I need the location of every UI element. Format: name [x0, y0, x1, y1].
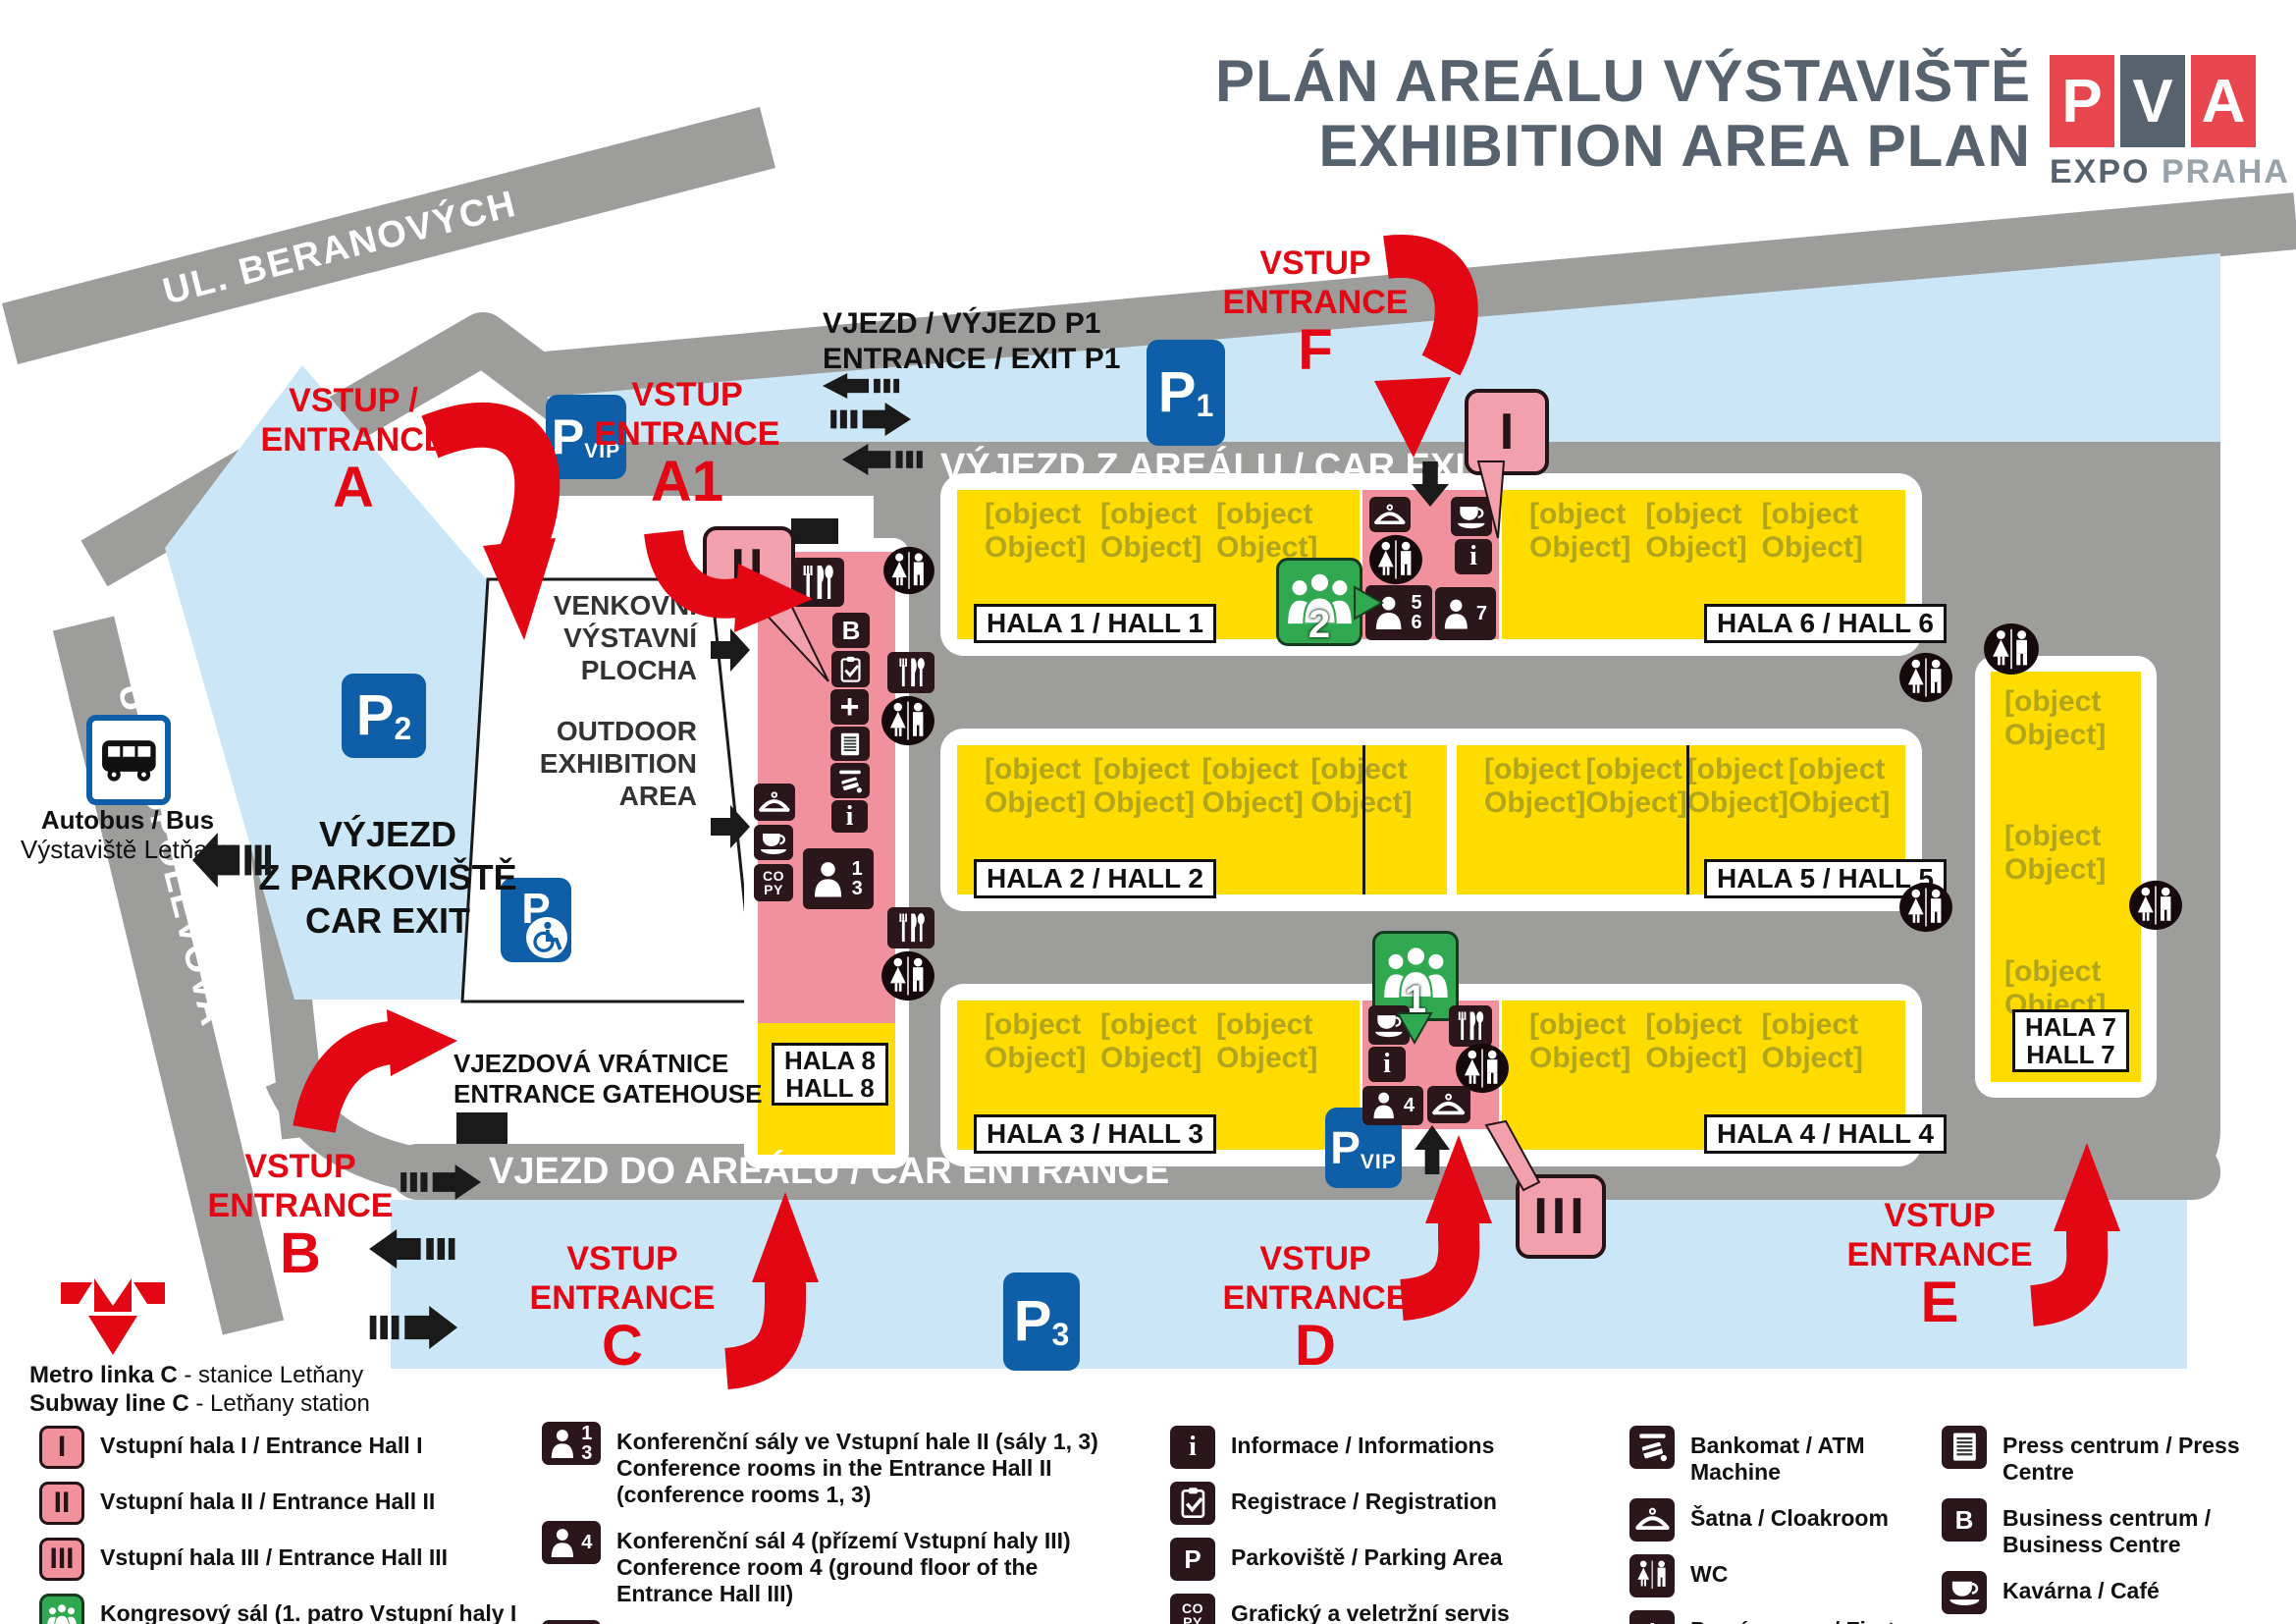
hall-6-label: HALA 6 / HALL 6 [1704, 604, 1947, 643]
entrance-c-arrow [726, 1192, 819, 1369]
entrance-f-label: VSTUP ENTRANCE F [1207, 244, 1423, 379]
legend-icon: COPY [1170, 1594, 1215, 1624]
hall-section-label: [object Object] [1202, 753, 1311, 820]
hall-section-label: [object Object] [1100, 1008, 1216, 1075]
information-icon: i [1455, 539, 1492, 574]
p1-gate-label: VJEZD / VÝJEZD P1 ENTRANCE / EXIT P1 [823, 306, 1120, 377]
hall-section-label: [object Object] [1645, 498, 1761, 565]
parking-p2-sign: P2 [342, 674, 426, 758]
legend-column-entrance-halls: I Vstupní hala I / Entrance Hall I II Vs… [39, 1426, 530, 1624]
legend-icon [1942, 1426, 1987, 1469]
hall-7-label: HALA 7 HALL 7 [2012, 1009, 2129, 1072]
p3-arrow-left [369, 1229, 461, 1269]
hall-section-label: [object Object] [985, 498, 1100, 565]
hall-section-label: [object Object] [1216, 498, 1332, 565]
road-beranovych-label: UL. BERANOVÝCH [158, 182, 520, 313]
hall-section-label: [object Object] [1216, 1008, 1332, 1075]
legend-icon [1170, 1482, 1215, 1525]
cloakroom-icon [1427, 1086, 1470, 1123]
hall-section-label: [object Object] [1789, 753, 1890, 820]
cafe-icon [754, 825, 793, 860]
logo-letter-p: P [2050, 55, 2114, 147]
road-car-entrance-label: VJEZD DO AREÁLU / CAR ENTRANCE [489, 1151, 1169, 1193]
restaurant-icon [1449, 1005, 1492, 1047]
outdoor-area-label-cz: VENKOVNÍVÝSTAVNÍPLOCHA [510, 589, 697, 686]
hall-2-label: HALA 2 / HALL 2 [974, 859, 1216, 898]
creativ-expo-copy-icon: COPY [754, 864, 793, 901]
hall-5-divider [1686, 745, 1689, 894]
hall2-entry-arrow-bottom [711, 805, 750, 848]
wheelchair-icon [526, 917, 567, 958]
legend-item: Registrace / Registration [1170, 1482, 1602, 1525]
cloakroom-icon [1369, 497, 1411, 532]
press-centre-icon [830, 727, 870, 761]
legend-item: I Vstupní hala I / Entrance Hall I [39, 1426, 530, 1469]
restaurant-icon [887, 907, 934, 948]
entrance-a1-label: VSTUP ENTRANCE A1 [579, 375, 795, 511]
entrance-hall-2-callout: II [703, 526, 795, 609]
legend-icon [1629, 1426, 1675, 1469]
legend-item: Press centrum / Press Centre [1942, 1426, 2295, 1486]
wc-icon [1983, 623, 2040, 676]
congress-hall-2-icon: 2 [1276, 558, 1362, 646]
car-entrance-arrow [395, 1164, 481, 1200]
legend-icon: B [1942, 1498, 1987, 1542]
hall2-entry-arrow-top [711, 628, 750, 672]
first-aid-icon: + [830, 689, 869, 725]
hall-section-label: [object Object] [1762, 1008, 1878, 1075]
map-title-cz: PLÁN AREÁLU VÝSTAVIŠTĚ [1049, 49, 2031, 114]
entry-arrow-right [825, 403, 911, 436]
hall-section-label: [object Object] [1687, 753, 1789, 820]
legend-item: 13 Konferenční sály ve Vstupní hale II (… [542, 1422, 1131, 1508]
map-title: PLÁN AREÁLU VÝSTAVIŠTĚ EXHIBITION AREA P… [1049, 49, 2031, 179]
legend-column-services-2: Bankomat / ATM Machine Šatna / Cloakroom… [1629, 1426, 1924, 1624]
hall-section-label: [object Object] [1762, 498, 1878, 565]
legend-item: Šatna / Cloakroom [1629, 1498, 1924, 1542]
entrance-a-label: VSTUP / ENTRANCE A [206, 381, 501, 516]
legend-item: COPY Grafický a veletržní servis CREATIV… [1170, 1594, 1602, 1624]
legend-column-conference: 13 Konferenční sály ve Vstupní hale II (… [542, 1422, 1131, 1624]
legend-icon: P [1170, 1538, 1215, 1581]
parking-p3-sign: P3 [1003, 1272, 1080, 1371]
legend-icon [1629, 1554, 1675, 1597]
entrance-e-label: VSTUP ENTRANCE E [1832, 1196, 2048, 1331]
legend-icon: II [39, 1482, 84, 1525]
restaurant-icon [791, 558, 844, 607]
information-icon: i [1368, 1047, 1406, 1082]
hall-section-label: [object Object] [1585, 753, 1686, 820]
legend-icon [1942, 1571, 1987, 1614]
road-beranovych [10, 137, 768, 334]
cafe-icon [1368, 1005, 1410, 1045]
wc-icon [1898, 882, 1953, 933]
wc-icon [880, 695, 936, 746]
hall-4-label: HALA 4 / HALL 4 [1704, 1114, 1947, 1154]
legend-icon: + [1629, 1610, 1675, 1624]
road-car-exit-label: VÝJEZD Z AREÁLU / CAR EXIT [940, 447, 1488, 489]
logo-letter-v: V [2120, 55, 2185, 147]
legend-item: 567 Konferenční sály (přízemí Vstupní ha… [542, 1620, 1131, 1624]
legend-icon: 4 [542, 1521, 601, 1564]
gatehouse-label: VJEZDOVÁ VRÁTNICE ENTRANCE GATEHOUSE [454, 1049, 762, 1110]
hall-section-label: [object Object] [1484, 753, 1585, 820]
gatehouse-building [456, 1112, 507, 1144]
restaurant-icon [887, 652, 934, 693]
exit-arrow-left [823, 373, 905, 399]
entrance-hall-1-callout: I [1465, 389, 1549, 475]
legend-item: + První pomoc / First Aid [1629, 1610, 1924, 1624]
legend-column-services-1: i Informace / Informations Registrace / … [1170, 1426, 1602, 1624]
legend-icon [1629, 1498, 1675, 1542]
legend-item: III Vstupní hala III / Entrance Hall III [39, 1538, 530, 1581]
legend-icon: 13 [542, 1422, 601, 1465]
parking-exit-arrow [192, 833, 277, 888]
pva-expo-praha-logo: P V A EXPO PRAHA [2050, 55, 2275, 191]
entrance-hall-3-callout: III [1516, 1174, 1606, 1259]
map-title-en: EXHIBITION AREA PLAN [1049, 114, 2031, 179]
wc-icon [1898, 652, 1953, 703]
legend-icon: III [39, 1538, 84, 1581]
business-centre-icon: B [832, 613, 870, 648]
conference-room-4-icon: 4 [1362, 1086, 1423, 1125]
bus-stop-sign [86, 715, 171, 805]
hall-2-divider [1362, 745, 1365, 894]
hall1-entry-arrow [1412, 461, 1449, 507]
legend-icon: I [39, 1426, 84, 1469]
hall-8-label: HALA 8 HALL 8 [772, 1043, 888, 1106]
hall-section-label: [object Object] [1529, 1008, 1645, 1075]
hall-section-label: [object Object] [2004, 685, 2141, 752]
entrance-c-label: VSTUP ENTRANCE C [514, 1239, 730, 1375]
outdoor-area-label-en: OUTDOOREXHIBITIONAREA [491, 715, 697, 812]
legend-column-services-3: Press centrum / Press Centre B Business … [1942, 1426, 2295, 1624]
legend-icon: i [1170, 1426, 1215, 1469]
legend-item: P Parkoviště / Parking Area [1170, 1538, 1602, 1581]
legend-item: Kavárna / Café [1942, 1571, 2295, 1614]
hall-3-label: HALA 3 / HALL 3 [974, 1114, 1216, 1154]
hall-section-label: [object Object] [1529, 498, 1645, 565]
hall-section-label: [object Object] [1100, 498, 1216, 565]
parking-exit-label: VÝJEZD Z PARKOVIŠTĚ CAR EXIT [245, 813, 530, 943]
legend-item: 4 Konferenční sál 4 (přízemí Vstupní hal… [542, 1521, 1131, 1607]
legend-item: WC [1629, 1554, 1924, 1597]
hall-section-label: [object Object] [985, 753, 1094, 820]
legend-icon [39, 1594, 84, 1624]
conference-rooms-13-icon: 13 [803, 848, 874, 909]
wc-icon [881, 546, 936, 595]
conference-room-7-icon: 7 [1435, 587, 1496, 640]
cloakroom-icon [754, 784, 795, 821]
hall-1-label: HALA 1 / HALL 1 [974, 604, 1216, 643]
logo-letter-a: A [2191, 55, 2256, 147]
metro-label: Metro linka C - stanice Letňany Subway l… [29, 1361, 370, 1418]
legend-item: B Business centrum / Business Centre [1942, 1498, 2295, 1558]
cafe-icon [1451, 497, 1492, 536]
legend-item: Bankomat / ATM Machine [1629, 1426, 1924, 1486]
legend-icon: 567 [542, 1620, 601, 1624]
registration-icon [831, 651, 870, 687]
hall-section-label: [object Object] [1645, 1008, 1761, 1075]
entrance-d-label: VSTUP ENTRANCE D [1207, 1239, 1423, 1375]
atm-icon [830, 763, 870, 798]
wc-icon [880, 950, 936, 1001]
legend-item: Kongresový sál (1. patro Vstupní haly I … [39, 1594, 530, 1624]
conference-rooms-56-icon: 56 [1365, 585, 1432, 640]
hall-section-label: [object Object] [985, 1008, 1100, 1075]
hall-section-label: [object Object] [2004, 820, 2141, 887]
exhibition-area-map: UL. BERANOVÝCH UL. TUPOLEVOVA PLÁN AREÁL… [0, 0, 2296, 1624]
logo-subtitle: EXPO PRAHA [2050, 153, 2275, 191]
hall3-entry-arrow [1415, 1125, 1450, 1174]
wc-icon [2128, 880, 2183, 931]
metro-logo [59, 1269, 167, 1359]
bus-icon [99, 728, 159, 792]
information-icon: i [831, 800, 868, 833]
entrance-b-arrow [314, 1009, 457, 1129]
wc-icon [1367, 534, 1424, 585]
building-marker [791, 518, 838, 544]
car-exit-arrow [842, 444, 929, 475]
hall-section-label: [object Object] [1094, 753, 1202, 820]
p3-arrow-right [363, 1306, 457, 1349]
legend-item: II Vstupní hala II / Entrance Hall II [39, 1482, 530, 1525]
legend-item: i Informace / Informations [1170, 1426, 1602, 1469]
